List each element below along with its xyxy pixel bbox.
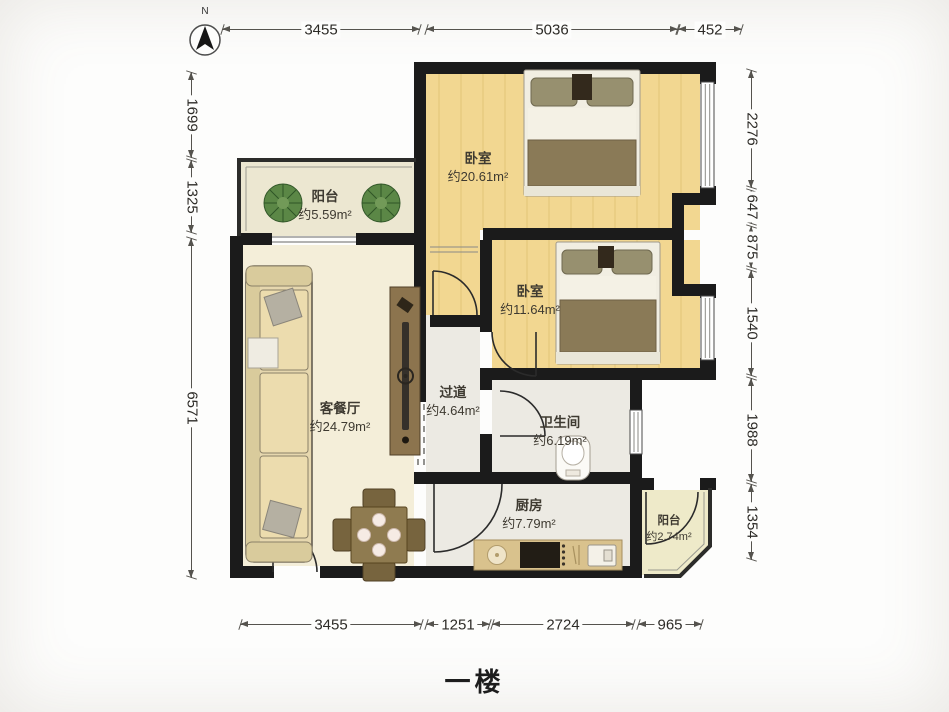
dimension-right-5: 1988 bbox=[744, 378, 760, 482]
dimension-left-1: 1699 bbox=[184, 72, 200, 158]
dimension-left-3: 6571 bbox=[184, 238, 200, 578]
stove-icon bbox=[520, 542, 560, 568]
floor-title: 一楼 bbox=[0, 662, 949, 699]
window-bedroom-2 bbox=[701, 296, 714, 360]
dimension-top-2: 5036 bbox=[426, 22, 678, 38]
room-label-bathroom: 卫生间 约6.19m² bbox=[512, 414, 608, 450]
floor-plan-drawing bbox=[0, 0, 949, 712]
kitchen-counter bbox=[474, 540, 622, 570]
dimension-right-4: 1540 bbox=[744, 270, 760, 376]
window-bedroom-1 bbox=[701, 82, 714, 188]
dimension-right-1: 2276 bbox=[744, 70, 760, 188]
room-label-kitchen: 厨房 约7.79m² bbox=[481, 497, 577, 533]
sliding-opening-balcony-living bbox=[272, 237, 356, 242]
floor-plan-canvas: N 阳台 约5.59m² 卧室 约20.61m² 卧室 约11.64m² 客餐厅… bbox=[0, 0, 949, 712]
floor-bedroom-1-nook bbox=[426, 230, 480, 315]
dimension-bottom-3: 2724 bbox=[492, 617, 634, 633]
room-label-balcony-bottom: 阳台 约2.74m² bbox=[628, 514, 710, 544]
dimension-right-2: 647 bbox=[744, 190, 760, 224]
dimension-right-3: 875 bbox=[744, 226, 760, 268]
dimension-top-1: 3455 bbox=[222, 22, 420, 38]
dimension-bottom-1: 3455 bbox=[240, 617, 422, 633]
dimension-top-3: 452 bbox=[678, 22, 742, 38]
window-bathroom bbox=[630, 410, 642, 454]
dimension-bottom-2: 1251 bbox=[426, 617, 490, 633]
room-label-living-dining: 客餐厅 约24.79m² bbox=[292, 400, 388, 436]
room-label-bedroom-1: 卧室 约20.61m² bbox=[430, 150, 526, 186]
dimension-bottom-4: 965 bbox=[638, 617, 702, 633]
dimension-left-2: 1325 bbox=[184, 160, 200, 233]
room-label-bedroom-2: 卧室 约11.64m² bbox=[482, 283, 578, 319]
room-label-balcony-top: 阳台 约5.59m² bbox=[277, 188, 373, 224]
bed-double-1 bbox=[524, 70, 640, 196]
room-label-hallway: 过道 约4.64m² bbox=[408, 384, 498, 420]
tv-cabinet bbox=[390, 287, 420, 455]
dimension-right-6: 1354 bbox=[744, 484, 760, 560]
